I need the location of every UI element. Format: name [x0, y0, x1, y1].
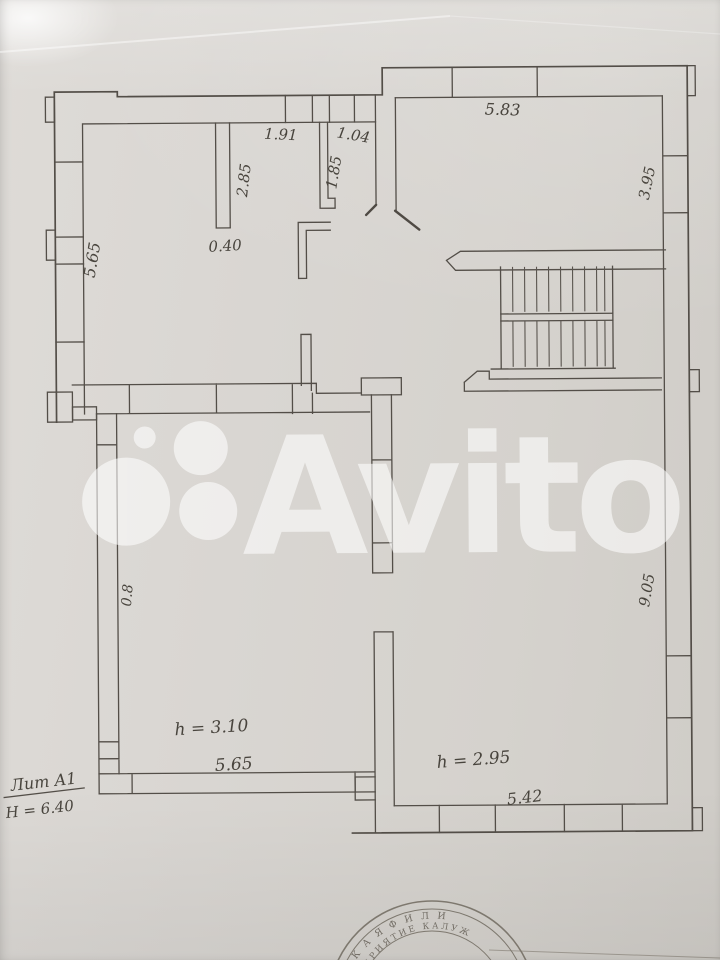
dim-395: 3.95 [635, 165, 659, 201]
avito-watermark-text: Avito [241, 401, 680, 593]
avito-logo-dot-big [82, 457, 171, 546]
dim-185: 1.85 [322, 154, 345, 190]
door-flare [366, 205, 419, 230]
dim-542: 5.42 [506, 786, 544, 809]
avito-logo-dot-small [134, 426, 156, 448]
dim-104: 1.04 [335, 123, 371, 146]
litera-block: Лит А1 Н = 6.40 [3, 769, 84, 823]
stair-treads-lower [513, 320, 605, 367]
dim-583: 5.83 [485, 100, 521, 120]
dim-565-bottom: 5.65 [214, 754, 253, 776]
avito-logo-dot-top [174, 421, 228, 475]
building-height-label: Н = 6.40 [4, 796, 76, 822]
height-room-left: h = 3.10 [174, 716, 249, 740]
stair-rail [446, 250, 665, 271]
stair-landing [501, 313, 613, 321]
stair-bottom-wall [464, 370, 661, 391]
stair-treads-upper [513, 266, 605, 312]
dim-040: 0.40 [208, 236, 243, 256]
avito-logo-dot-right [179, 482, 237, 540]
paper-creases [0, 16, 720, 52]
staircase [446, 250, 666, 392]
height-room-right: h = 2.95 [436, 747, 511, 773]
litera-label: Лит А1 [9, 769, 78, 795]
floorplan-photo: Avito 1.91 1.04 5.83 2.85 1.85 5.65 0.40… [0, 0, 720, 960]
avito-watermark: Avito [81, 401, 680, 594]
floor-plan-svg: Avito 1.91 1.04 5.83 2.85 1.85 5.65 0.40… [0, 0, 720, 960]
dim-191: 1.91 [264, 125, 298, 144]
dim-08: 0.8 [119, 583, 137, 607]
dim-285: 2.85 [233, 163, 255, 199]
stamp: С К А Я Ф И Л И ПРИЯТИЕ КАЛУЖ [328, 901, 720, 960]
stub-wall [216, 123, 231, 228]
